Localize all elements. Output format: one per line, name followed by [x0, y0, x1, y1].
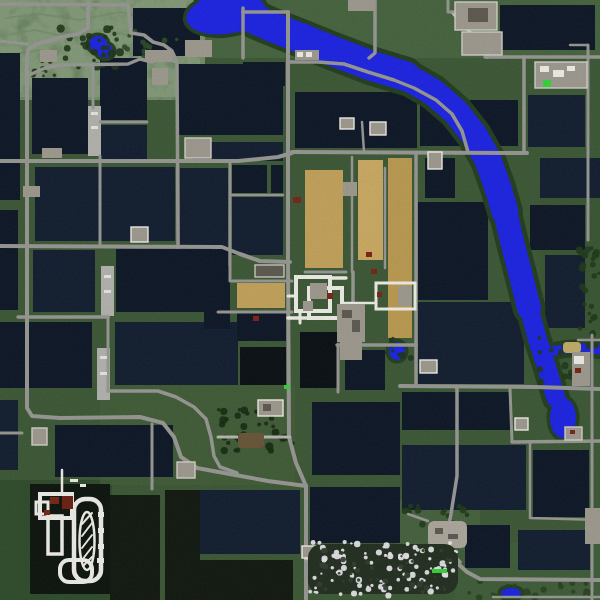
texture-overlay: [0, 0, 600, 600]
world-map-canvas[interactable]: [0, 0, 600, 600]
game-map-screen: [0, 0, 600, 600]
